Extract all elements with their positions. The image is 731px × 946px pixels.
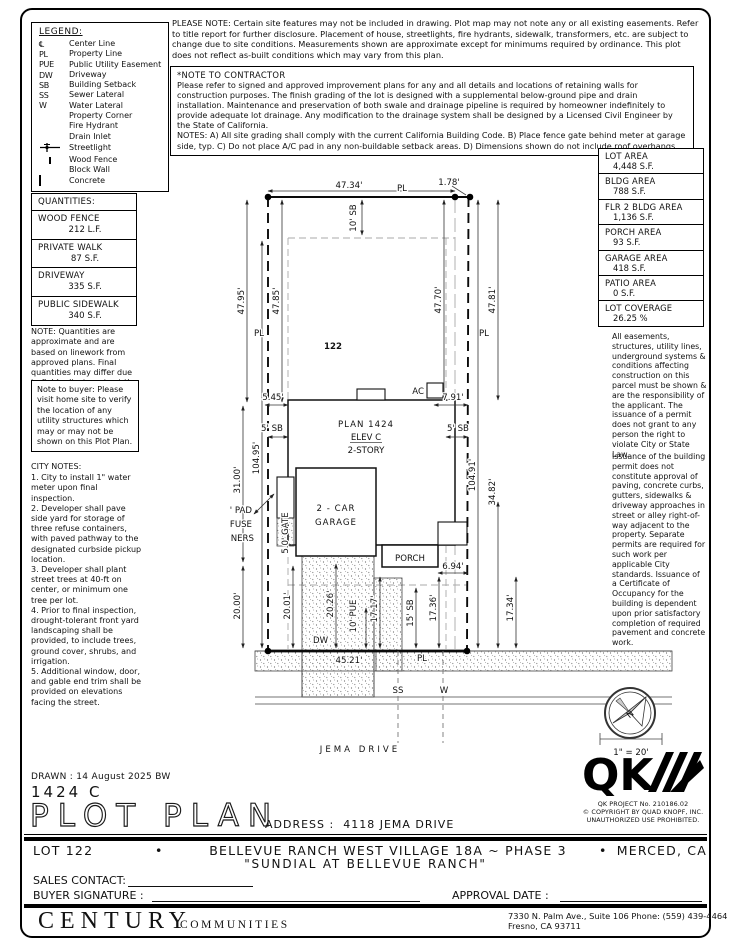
city-note-item: 4. Prior to final inspection, drought-to… <box>31 606 143 667</box>
legend-item: Streetlight <box>39 142 162 155</box>
street-name: JEMA DRIVE <box>319 745 400 755</box>
legend-item: Property Corner <box>39 111 162 121</box>
dim-label: 47.34' <box>336 181 363 191</box>
bullet: • <box>599 843 608 858</box>
ac-pad <box>427 383 443 398</box>
builder-brand: CENTURY <box>38 908 192 935</box>
community-name: "SUNDIAL AT BELLEVUE RANCH" <box>0 857 731 871</box>
centerline-symbol: ℄ <box>39 40 69 49</box>
dim-label: 104.91' <box>468 459 478 491</box>
city-notes-title: CITY NOTES: <box>31 462 143 472</box>
dim-label: 47.81' <box>488 287 498 314</box>
dim-label: 5' SB <box>447 424 469 434</box>
buyer-signature-line[interactable] <box>152 901 420 902</box>
setback-symbol: SB <box>39 81 69 90</box>
qk-logo-block: QK QK PROJECT No. 210186.02 © COPYRIGHT … <box>580 750 706 824</box>
legend-label: Block Wall <box>69 165 110 175</box>
legend-item: PLProperty Line <box>39 49 162 59</box>
driveway-symbol: DW <box>39 71 69 80</box>
sheet-title: PLOT PLAN <box>30 798 280 834</box>
builder-address-line2: Fresno, CA 93711 <box>508 921 727 931</box>
dim-label: 31.00' <box>233 467 243 494</box>
dim-label: 20.01' <box>283 593 293 620</box>
legend-item: SSSewer Lateral <box>39 90 162 100</box>
dim-label: 17.36' <box>429 595 439 622</box>
dim-label: 34.82' <box>488 479 498 506</box>
quantity-value: 335 S.F. <box>38 282 132 292</box>
sewer-label: SS <box>393 686 404 696</box>
legend-label: Property Corner <box>69 111 132 121</box>
legend-item: Block Wall <box>39 165 162 175</box>
approval-date-line[interactable] <box>560 901 702 902</box>
dim-label: 10' PUE <box>349 600 359 633</box>
legend-label: Drain Inlet <box>69 132 111 142</box>
property-corner <box>467 194 474 201</box>
address-value: 4118 JEMA DRIVE <box>343 818 454 831</box>
driveway-label: DW <box>313 636 329 646</box>
water-symbol: W <box>39 101 69 110</box>
refuse-pad-label: 9'x4' PAD <box>230 506 252 516</box>
quantity-name: WOOD FENCE <box>38 214 132 224</box>
property-line-label: PL <box>397 184 407 194</box>
qk-logo-text: QK <box>582 750 655 796</box>
property-line-label: PL <box>417 654 427 664</box>
footer-tract: BELLEVUE RANCH WEST VILLAGE 18A ~ PHASE … <box>178 843 598 858</box>
contractor-note-title: *NOTE TO CONTRACTOR <box>177 70 687 80</box>
city-notes: CITY NOTES: 1. City to install 1" water … <box>31 462 143 708</box>
address-label: ADDRESS : <box>265 818 334 831</box>
legend-item: WWater Lateral <box>39 101 162 111</box>
qk-project: QK PROJECT No. 210186.02 <box>580 800 706 808</box>
legend-title: LEGEND: <box>39 27 162 37</box>
side-step <box>438 522 467 545</box>
qk-logo: QK <box>582 750 704 796</box>
quantity-value: 340 S.F. <box>38 311 132 321</box>
please-note-text: PLEASE NOTE: Certain site features may n… <box>172 18 700 60</box>
divider <box>24 834 707 835</box>
water-label: W <box>440 686 449 696</box>
elev-label: ELEV C <box>351 433 381 443</box>
property-corner <box>265 194 272 201</box>
property-corner <box>452 194 459 201</box>
bullet: • <box>155 843 164 858</box>
legend-label: Public Utility Easement <box>69 60 161 70</box>
quantity-row: PRIVATE WALK87 S.F. <box>31 239 137 269</box>
legend-item: Drain Inlet <box>39 132 162 142</box>
quantity-row: PUBLIC SIDEWALK340 S.F. <box>31 296 137 326</box>
garage-label: GARAGE <box>315 518 357 528</box>
plot-plan-page: LEGEND: ℄Center Line PLProperty Line PUE… <box>0 0 731 946</box>
legend-box: LEGEND: ℄Center Line PLProperty Line PUE… <box>31 22 169 192</box>
dim-label: 1.78' <box>438 178 460 188</box>
sewer-symbol: SS <box>39 91 69 100</box>
qk-rights: UNAUTHORIZED USE PROHIBITED. <box>580 816 706 824</box>
dim-label: 10' SB <box>349 204 359 231</box>
quantity-name: PRIVATE WALK <box>38 243 132 253</box>
porch-label: PORCH <box>395 554 425 564</box>
streetlight-icon <box>39 142 69 155</box>
quantity-row: DRIVEWAY335 S.F. <box>31 267 137 297</box>
dim-label: 20.26' <box>326 591 336 618</box>
dim-label: 45.21' <box>336 656 363 666</box>
dim-label: 20.00' <box>233 593 243 620</box>
concrete-icon <box>39 176 69 185</box>
buyer-signature-label: BUYER SIGNATURE : <box>33 889 144 902</box>
qk-copyright: © COPYRIGHT BY QUAD KNOPF, INC. <box>580 808 706 816</box>
quantity-row: WOOD FENCE212 L.F. <box>31 210 137 240</box>
quantity-value: 212 L.F. <box>38 225 132 235</box>
legend-label: Water Lateral <box>69 101 123 111</box>
city-note-item: 3. Developer shall plant street trees at… <box>31 565 143 606</box>
legend-item: Fire Hydrant <box>39 121 162 131</box>
ac-label: AC <box>412 387 424 397</box>
dim-label: 17.34' <box>506 595 516 622</box>
property-line-label: PL <box>479 329 489 339</box>
refuse-pad-label: FOR REFUSE <box>230 520 252 530</box>
divider <box>24 837 707 841</box>
refuse-pad-label: CONTAINERS <box>230 534 254 544</box>
address-line: ADDRESS : 4118 JEMA DRIVE <box>265 818 454 831</box>
legend-label: Streetlight <box>69 143 111 153</box>
contractor-note-box: *NOTE TO CONTRACTOR Please refer to sign… <box>170 66 694 156</box>
legend-label: Building Setback <box>69 80 136 90</box>
dim-label: 47.85' <box>272 288 282 315</box>
garage-label: 2 - CAR <box>317 504 356 514</box>
quantity-name: DRIVEWAY <box>38 271 132 281</box>
lot-number: 122 <box>324 342 342 352</box>
pue-symbol: PUE <box>39 60 69 69</box>
house-bump <box>357 389 385 400</box>
quantity-value: 87 S.F. <box>38 254 132 264</box>
plot-drawing: 47.34' 1.78' PL 10' SB 47.95' 47.85' 47.… <box>230 145 680 785</box>
dim-label: 47.95' <box>237 288 247 315</box>
city-note-item: 2. Developer shall pave side yard for st… <box>31 504 143 565</box>
sales-contact-line[interactable] <box>128 886 253 887</box>
city-note-item: 5. Additional window, door, and gable en… <box>31 667 143 708</box>
legend-label: Sewer Lateral <box>69 90 124 100</box>
property-line-label: PL <box>254 329 264 339</box>
legend-item: PUEPublic Utility Easement <box>39 60 162 70</box>
contractor-note-body: Please refer to signed and approved impr… <box>177 80 687 130</box>
legend-label: Property Line <box>69 49 122 59</box>
plan-label: PLAN 1424 <box>338 420 394 430</box>
property-corner <box>265 648 272 655</box>
approval-date-label: APPROVAL DATE : <box>452 889 549 902</box>
dim-label: 6.94' <box>442 562 464 572</box>
refuse-pad <box>277 477 294 518</box>
legend-item: Concrete <box>39 176 162 186</box>
legend-label: Center Line <box>69 39 115 49</box>
quantities-title: QUANTITIES: <box>38 197 132 207</box>
builder-address-line1: 7330 N. Palm Ave., Suite 106 Phone: (559… <box>508 911 727 921</box>
quantity-name: PUBLIC SIDEWALK <box>38 300 132 310</box>
legend-item: SBBuilding Setback <box>39 80 162 90</box>
gate-label: 5.0' GATE <box>281 512 291 553</box>
legend-item: DWDriveway <box>39 70 162 80</box>
legend-item: ℄Center Line <box>39 39 162 49</box>
legend-item: Wood Fence <box>39 155 162 165</box>
legend-label: Concrete <box>69 176 105 186</box>
dim-label: 7.91' <box>442 393 464 403</box>
dim-label: 104.95' <box>252 442 262 474</box>
builder-brand-sub: COMMUNITIES <box>180 919 290 931</box>
property-corner <box>464 648 471 655</box>
dim-label: 5.45' <box>262 393 284 403</box>
property-line-symbol: PL <box>39 50 69 59</box>
quantities-table: QUANTITIES: WOOD FENCE212 L.F. PRIVATE W… <box>31 193 137 326</box>
legend-label: Driveway <box>69 70 107 80</box>
city-note-item: 1. City to install 1" water meter upon f… <box>31 473 143 504</box>
footer-lot: LOT 122 <box>33 843 93 858</box>
drawn-by: DRAWN : 14 August 2025 BW <box>31 772 171 782</box>
builder-address: 7330 N. Palm Ave., Suite 106 Phone: (559… <box>508 911 727 931</box>
dim-label: 15' SB <box>406 599 416 626</box>
footer-city: MERCED, CA <box>617 843 707 858</box>
legend-label: Fire Hydrant <box>69 121 118 131</box>
buyer-note-box: Note to buyer: Please visit home site to… <box>31 380 139 452</box>
legend-label: Wood Fence <box>69 155 117 165</box>
dim-label: 47.70' <box>434 287 444 314</box>
story-label: 2-STORY <box>348 446 385 456</box>
north-compass: N <box>605 688 655 738</box>
sales-contact-label: SALES CONTACT: <box>33 874 126 887</box>
dim-label: 17.17' <box>370 596 380 623</box>
dim-label: 5' SB <box>261 424 283 434</box>
